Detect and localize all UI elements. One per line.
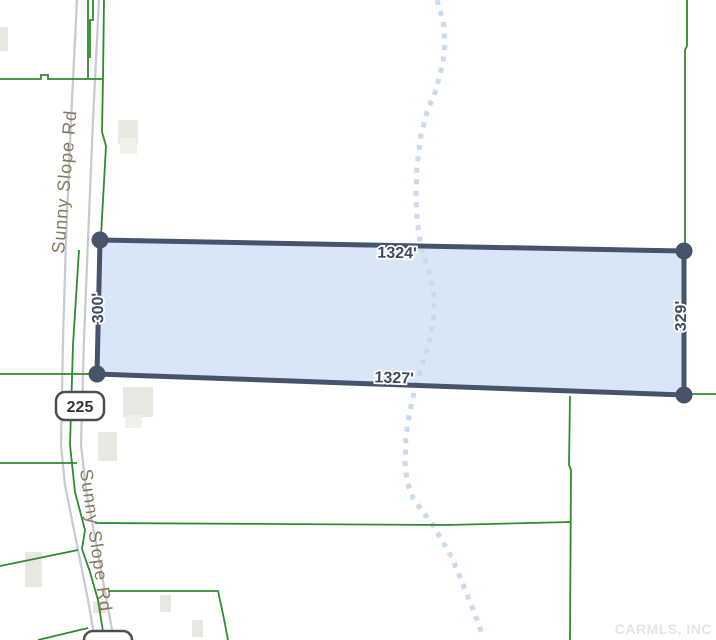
watermark-text: CARMLS, INC	[615, 621, 712, 637]
plat-map-svg: 225 225 Sunny Slope Rd Sunny Slope Rd 13…	[0, 0, 716, 640]
dimension-label-bottom: 1327'	[374, 369, 414, 387]
road-name-label-lower: Sunny Slope Rd	[76, 468, 116, 613]
dimension-label-right: 329'	[673, 301, 690, 332]
building-footprint	[125, 415, 142, 428]
building-footprint	[123, 387, 153, 417]
parcel-corner-ne	[676, 243, 693, 260]
boundary-line	[38, 628, 88, 640]
building-footprint	[160, 595, 171, 612]
boundary-line	[95, 522, 570, 525]
dimension-label-top: 1324'	[377, 245, 417, 263]
map-canvas: 225 225 Sunny Slope Rd Sunny Slope Rd 13…	[0, 0, 716, 640]
building-footprint	[192, 620, 203, 637]
parcel-corner-sw	[89, 366, 106, 383]
building-footprint	[0, 27, 8, 51]
parcel-corner-nw	[92, 232, 109, 249]
road-name-label-upper: Sunny Slope Rd	[48, 109, 80, 254]
boundary-line	[569, 396, 571, 640]
parcel-corner-se	[676, 387, 693, 404]
building-footprint	[98, 432, 117, 461]
boundary-line	[685, 0, 687, 249]
shield-label: 225	[67, 399, 94, 416]
highway-shield-225: 225	[56, 392, 104, 420]
building-footprint	[120, 138, 137, 154]
boundary-line	[90, 0, 93, 58]
highway-shield-225-lower: 225	[84, 631, 132, 640]
boundary-line	[101, 0, 106, 236]
dimension-label-left: 300'	[90, 293, 108, 324]
